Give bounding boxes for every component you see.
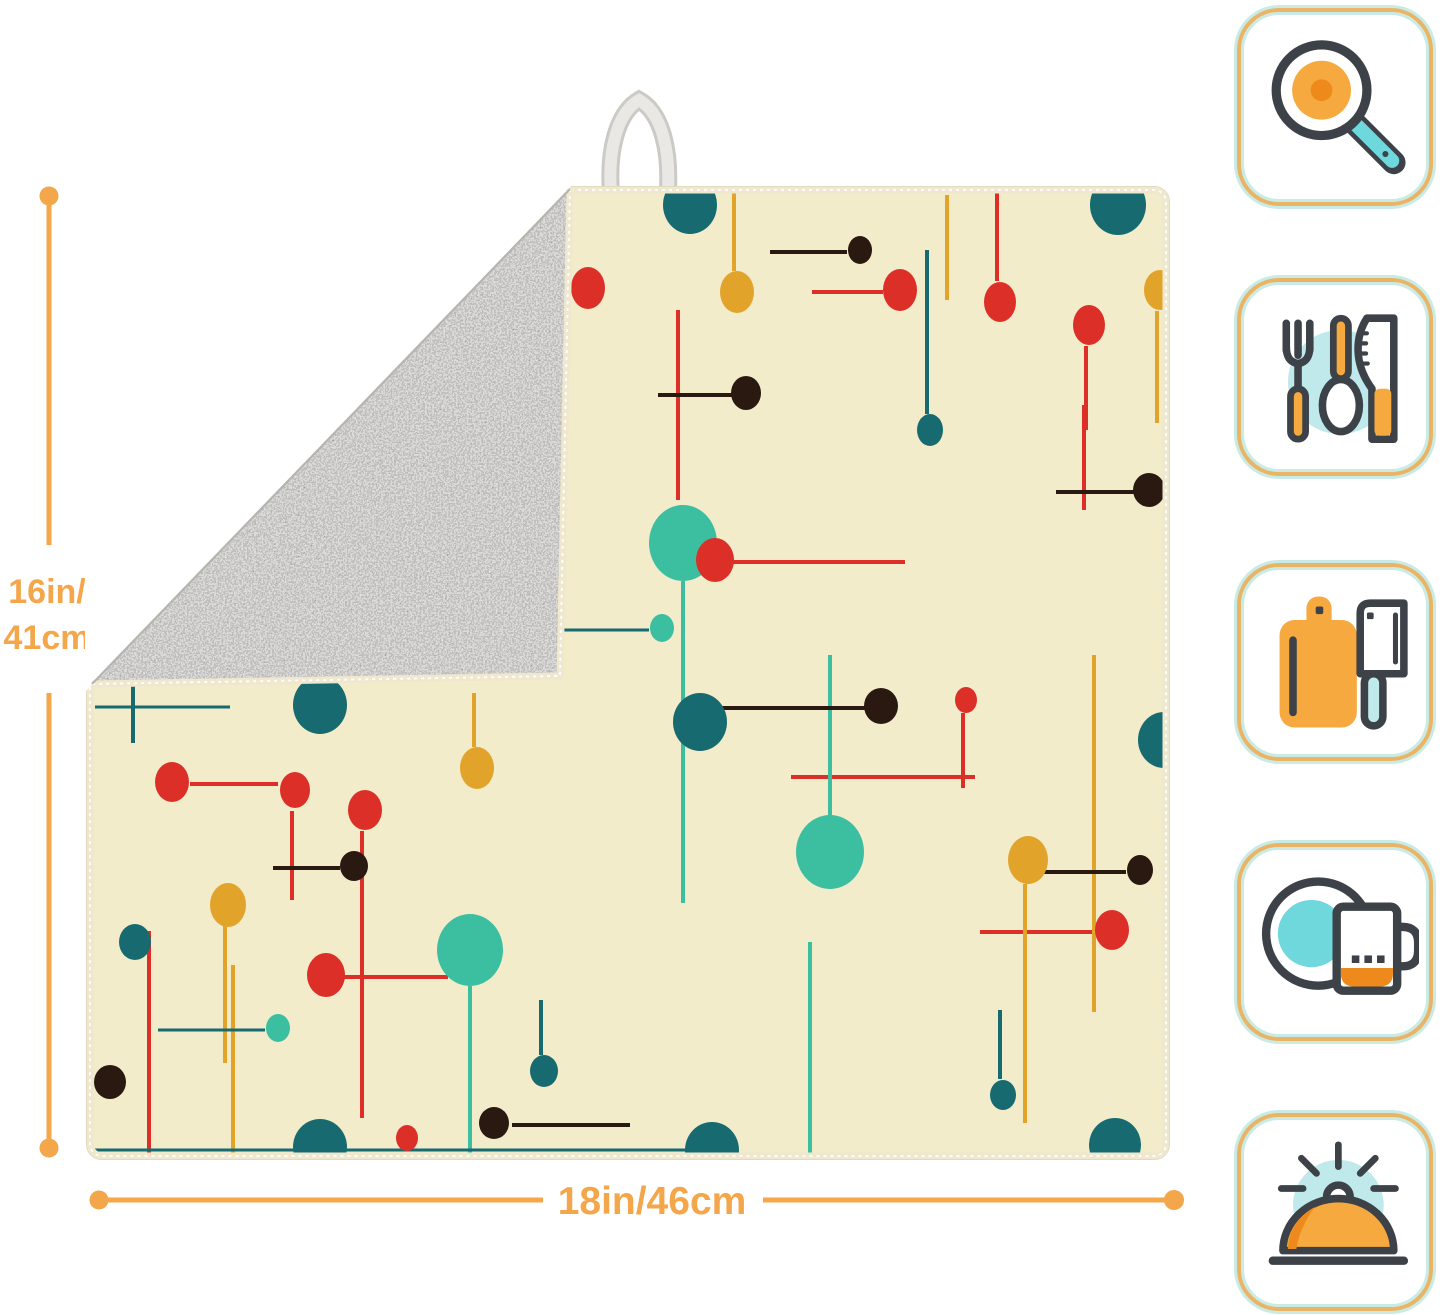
pattern-dot: [1008, 836, 1048, 884]
pattern-dot: [883, 269, 917, 311]
pattern-dot: [119, 924, 151, 960]
product-listing-image: 16in/ 41cm: [0, 0, 1445, 1315]
cutting-board-icon: [1251, 577, 1419, 747]
pattern-dot: [1089, 1118, 1141, 1172]
height-dimension: 16in/ 41cm: [4, 187, 91, 1158]
pattern-dot: [1095, 910, 1129, 950]
pattern-dot: [479, 1107, 509, 1139]
badge-cutting-board: [1237, 563, 1433, 761]
mat-scene: 16in/ 41cm: [0, 0, 1230, 1315]
pattern-dot: [917, 414, 943, 446]
pattern-dot: [731, 376, 761, 410]
pattern-dot: [460, 747, 494, 789]
pattern-dot: [437, 914, 503, 986]
pattern-dot: [94, 1065, 126, 1099]
pattern-dot: [396, 1125, 418, 1151]
pattern-dot: [990, 1080, 1016, 1110]
pattern-dot: [340, 851, 368, 881]
badge-cutlery: [1237, 278, 1433, 476]
pattern-dot: [155, 762, 189, 802]
pattern-dot: [293, 1119, 347, 1175]
pattern-dot: [984, 282, 1016, 322]
pattern-dot: [1133, 473, 1165, 507]
height-label-line2: 41cm: [4, 619, 91, 657]
pattern-dot: [1144, 270, 1176, 310]
badge-dishware: [1237, 843, 1433, 1041]
height-label-line1: 16in/: [8, 573, 86, 611]
pattern-dot: [348, 790, 382, 830]
pattern-dot: [696, 538, 734, 582]
pattern-dot: [955, 687, 977, 713]
frying-pan-icon: [1251, 22, 1419, 192]
cutlery-icon: [1251, 292, 1419, 462]
pattern-dot: [796, 815, 864, 889]
pattern-dot: [530, 1055, 558, 1087]
pattern-dot: [280, 772, 310, 808]
pattern-dot: [293, 676, 347, 734]
cloche-icon: [1251, 1127, 1419, 1297]
pattern-dot: [210, 883, 246, 927]
badge-frying-pan: [1237, 8, 1433, 206]
pattern-dot: [848, 236, 872, 264]
pattern-dot: [307, 953, 345, 997]
pattern-dot: [650, 614, 674, 642]
badge-cloche: [1237, 1113, 1433, 1311]
dishware-icon: [1251, 857, 1419, 1027]
pattern-dot: [720, 271, 754, 313]
pattern-dot: [1073, 305, 1105, 345]
pattern-dot: [1090, 175, 1146, 235]
width-label: 18in/46cm: [558, 1180, 747, 1223]
pattern-dot: [673, 693, 727, 751]
pattern-dot: [685, 1122, 739, 1178]
dish-drying-mat: [85, 175, 1190, 1178]
pattern-dot: [1127, 855, 1153, 885]
width-dimension: 18in/46cm: [90, 1180, 1185, 1223]
pattern-dot: [266, 1014, 290, 1042]
pattern-dot: [864, 688, 898, 724]
pattern-dot: [571, 267, 605, 309]
